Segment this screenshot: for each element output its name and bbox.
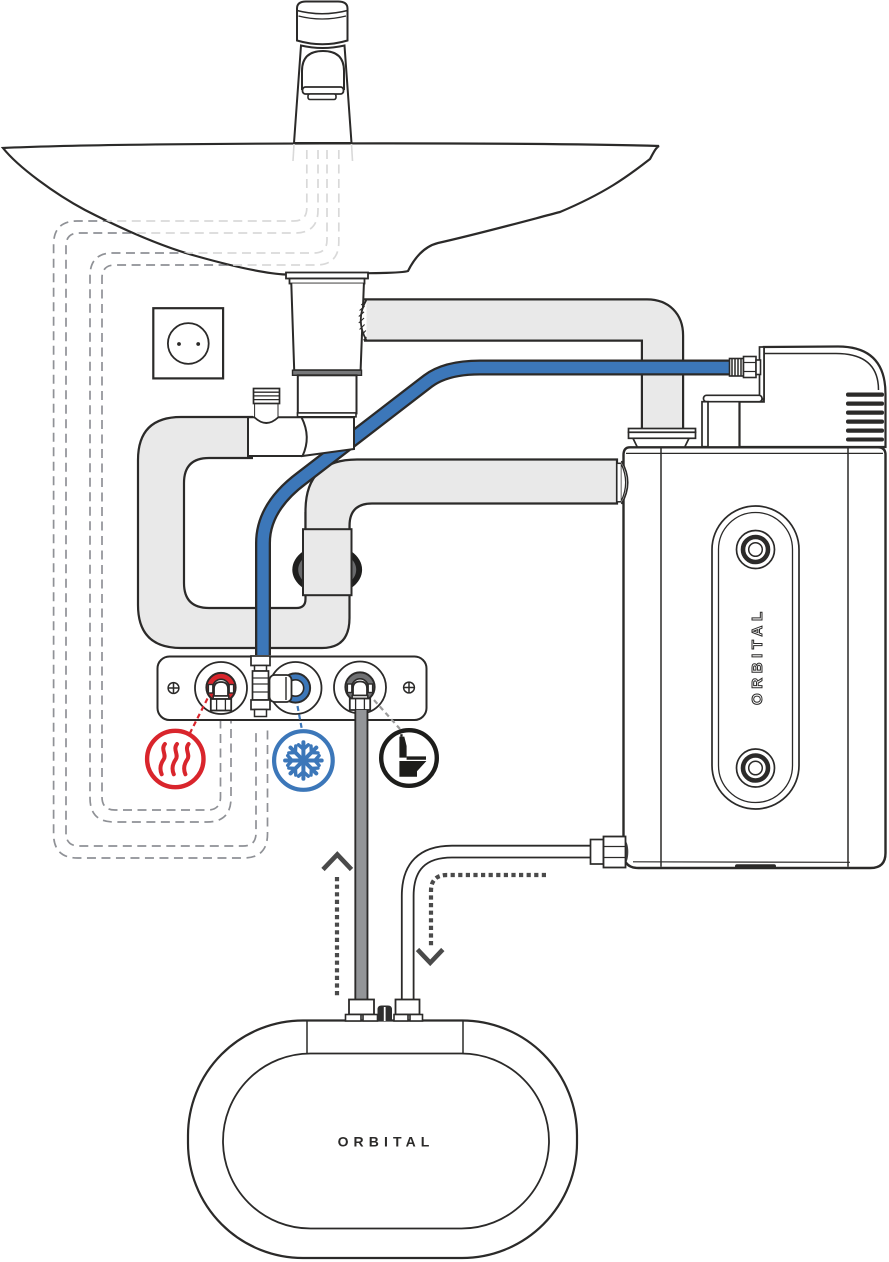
svg-text:ORBITAL: ORBITAL <box>749 607 766 705</box>
svg-text:ORBITAL: ORBITAL <box>338 1134 435 1150</box>
